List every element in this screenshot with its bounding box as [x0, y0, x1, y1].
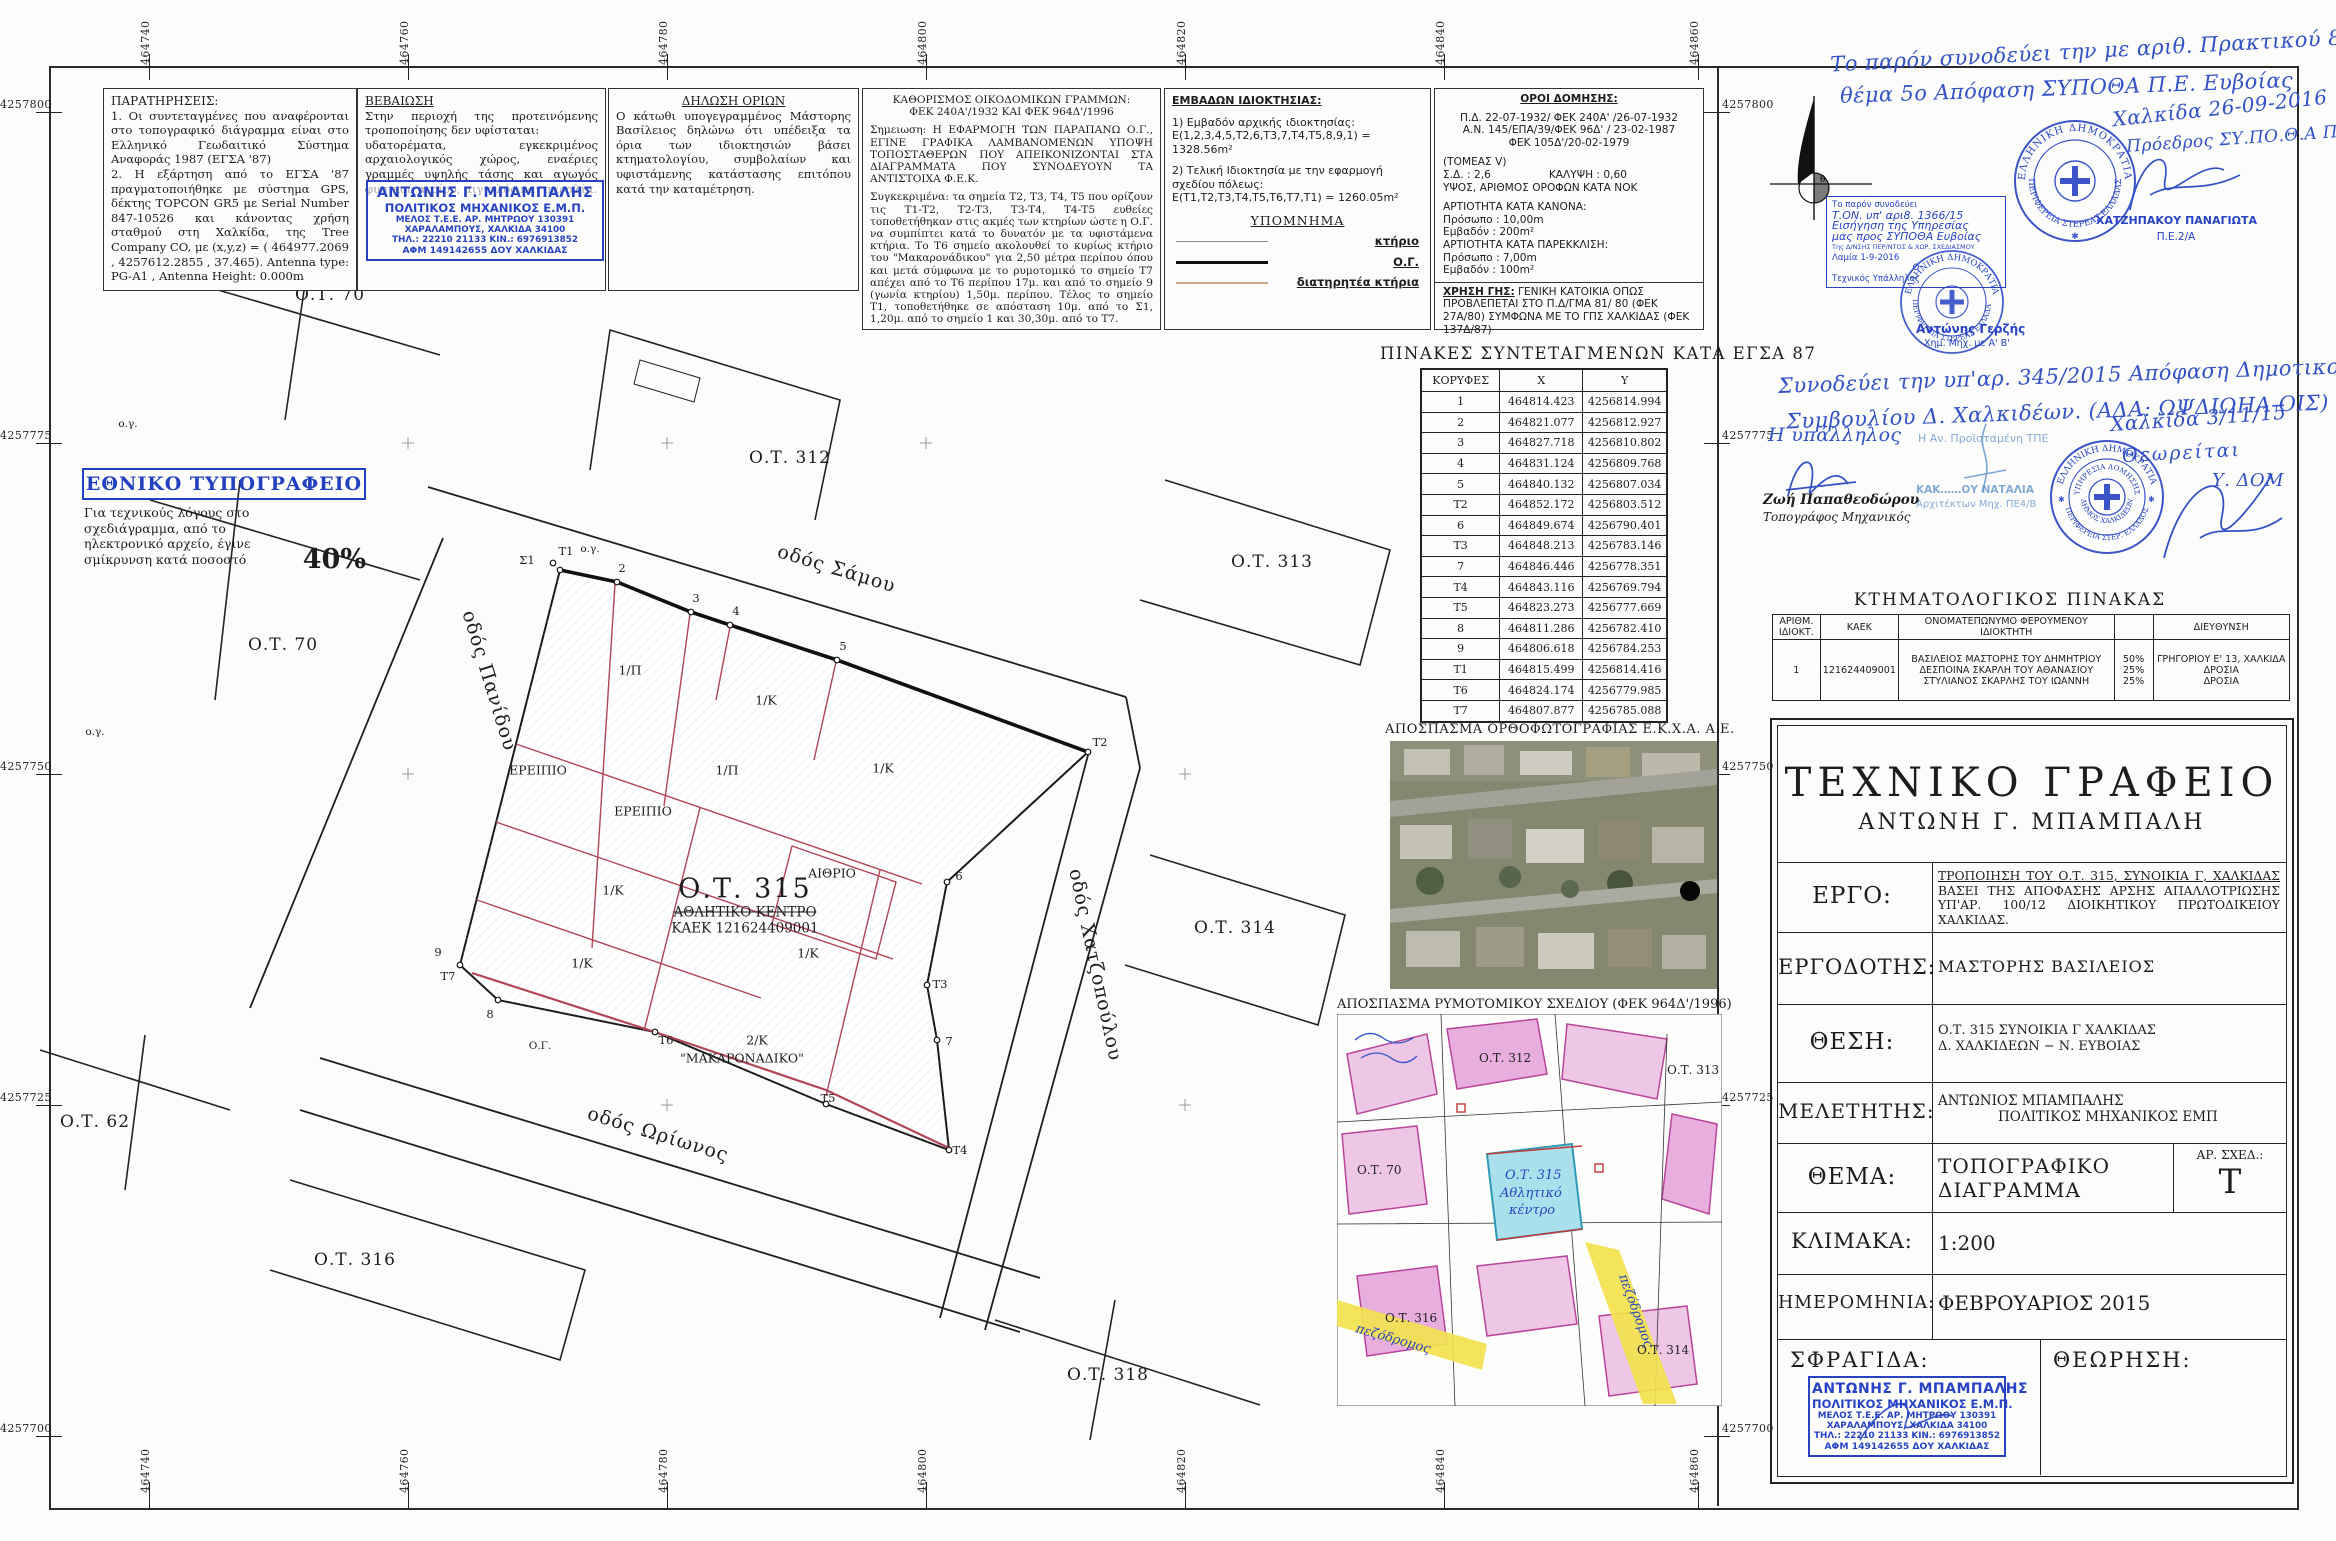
vertex-label: 8	[486, 1007, 493, 1021]
parcel-label: 2/Κ	[746, 1033, 768, 1048]
oroi-ypsos: ΥΨΟΣ, ΑΡΙΘΜΟΣ ΟΡΟΦΩΝ ΚΑΤΑ ΝΟΚ	[1443, 182, 1695, 195]
coords-table-title: ΠΙΝΑΚΕΣ ΣΥΝΤΕΤΑΓΜΕΝΩΝ ΚΑΤΑ ΕΓΣΑ 87	[1380, 344, 1710, 363]
coords-row: 6464849.6744256790.401	[1421, 515, 1667, 536]
coords-cell: 464852.172	[1500, 494, 1583, 515]
ergodotis-value: ΜΑΣΤΟΡΗΣ ΒΑΣΙΛΕΙΟΣ	[1938, 957, 2280, 976]
notes-kathorismos: ΚΑΘΟΡΙΣΜΟΣ ΟΙΚΟΔΟΜΙΚΩΝ ΓΡΑΜΜΩΝ: ΦΕΚ 240Α…	[862, 88, 1161, 330]
engineer-stamp-line: ΧΑΡΑΛΑΜΠΟΥΣ, ΧΑΛΚΙΔΑ 34100	[370, 225, 600, 235]
engineer-stamp-line: ΤΗΛ.: 22210 21133 ΚΙΝ.: 6976913852	[370, 235, 600, 245]
coords-cell: 464827.718	[1500, 433, 1583, 454]
gertzis-name: Αντώνης Γερζής	[1916, 322, 2025, 336]
handwritten-ypallilos: Η υπάλληλος	[1768, 424, 1901, 446]
coords-row: 1464814.4234256814.994	[1421, 392, 1667, 413]
coords-col-header: Υ	[1583, 369, 1667, 392]
coords-row: 3464827.7184256810.802	[1421, 433, 1667, 454]
thesi-line1: Ο.Τ. 315 ΣΥΝΟΙΚΙΑ Γ ΧΑΛΚΙΔΑΣ	[1938, 1023, 2280, 1039]
rymo-ot316: Ο.Τ. 316	[1385, 1311, 1437, 1325]
block-label: Ο.Τ. 318	[1067, 1365, 1149, 1385]
coords-cell: 4256807.034	[1583, 474, 1667, 495]
papatheodorou-name: Ζωή Παπαθεοδώρου	[1763, 492, 1919, 508]
parcel-label: ΕΡΕΙΠΙΟ	[509, 763, 567, 778]
vertex-label: Σ1	[519, 553, 534, 567]
legend-label: Ο.Γ.	[1393, 256, 1419, 270]
vertex-label: 9	[434, 945, 441, 959]
coords-row: Τ7464807.8774256785.088	[1421, 700, 1667, 721]
rymo-ot315-hand: Ο.Τ. 315	[1505, 1168, 1562, 1183]
klimaka-value: 1:200	[1938, 1231, 2280, 1255]
coords-cell: 9	[1421, 639, 1500, 660]
imerominia-label: ΗΜΕΡΟΜΗΝΙΑ:	[1778, 1293, 1926, 1313]
coords-row: 7464846.4464256778.351	[1421, 556, 1667, 577]
reduction-note-body: Για τεχνικούς λόγους στο σχεδιάγραμμα, α…	[84, 505, 250, 567]
topographic-drawing-sheet: 4647404647404647604647604647804647804648…	[0, 0, 2336, 1541]
emvadon-area2: Ε(Τ1,Τ2,Τ3,Τ4,Τ5,Τ6,Τ7,Τ1) = 1260.05m²	[1172, 191, 1423, 205]
office-subtitle: ΑΝΤΩΝΗ Γ. ΜΠΑΜΠΑΛΗ	[1778, 810, 2286, 835]
notes-oroi-domisis: ΟΡΟΙ ΔΟΜΗΣΗΣ: Π.Δ. 22-07-1932/ ΦΕΚ 240Α'…	[1434, 88, 1704, 330]
oroi-sd: Σ.Δ. : 2,6	[1443, 169, 1491, 181]
rect-stamp-line: μας προς ΣΥΠΟΘΑ Ευβοίας	[1832, 232, 2000, 243]
vertex-label: 2	[618, 561, 625, 575]
coords-cell: 4256812.927	[1583, 412, 1667, 433]
cadastral-cell: ΒΑΣΙΛΕΙΟΣ ΜΑΣΤΟΡΗΣ ΤΟΥ ΔΗΜΗΤΡΙΟΥΔΕΣΠΟΙΝΑ…	[1898, 640, 2114, 701]
natalia-title: Αρχιτέκτων Μηχ. ΠΕ4/Β	[1916, 499, 2036, 510]
oroi-fek1: Π.Δ. 22-07-1932/ ΦΕΚ 240Α' /26-07-1932	[1443, 112, 1695, 125]
cadastral-col-header: ΟΝΟΜΑΤΕΠΩΝΥΜΟ ΦΕΡΟΥΜΕΝΟΥ ΙΔΙΟΚΤΗΤΗ	[1898, 615, 2114, 640]
reduction-note: ΕΘΝΙΚΟ ΤΥΠΟΓΡΑΦΕΙΟ Για τεχνικούς λόγους …	[82, 468, 366, 567]
coords-row: Τ6464824.1744256779.985	[1421, 680, 1667, 701]
block-label: Ο.Τ. 70	[248, 635, 318, 655]
oroi-title: ΟΡΟΙ ΔΟΜΗΣΗΣ:	[1520, 93, 1618, 105]
coords-cell: 4256779.985	[1583, 680, 1667, 701]
legend-label: διατηρητέα κτήρια	[1297, 276, 1419, 290]
emvadon-area1: Ε(1,2,3,4,5,Τ2,6,Τ3,7,Τ4,Τ5,8,9,1) = 132…	[1172, 129, 1423, 156]
coords-cell: 464807.877	[1500, 700, 1583, 721]
cadastral-col-header: ΔΙΕΥΘΥΝΣΗ	[2153, 615, 2290, 640]
thesi-label: ΘΕΣΗ:	[1778, 1029, 1926, 1055]
street-label: οδός Σάμου	[775, 540, 899, 597]
oroi-artiotita2: ΑΡΤΙΟΤΗΤΑ ΚΑΤΑ ΠΑΡΕΚΚΛΙΣΗ:	[1443, 239, 1695, 252]
block-center-label: Ο.Τ. 315 ΑΘΛΗΤΙΚΟ ΚΕΝΤΡΟ ΚΑΕΚ 1216244090…	[671, 874, 818, 937]
engineer-stamp-line: ΠΟΛΙΤΙΚΟΣ ΜΗΧΑΝΙΚΟΣ Ε.Μ.Π.	[370, 201, 600, 215]
oroi-tomeas: (ΤΟΜΕΑΣ V)	[1443, 156, 1695, 169]
coords-cell: 464806.618	[1500, 639, 1583, 660]
engineer-stamp-vevaiosi: ΑΝΤΩΝΗΣ Γ. ΜΠΑΜΠΑΛΗΣΠΟΛΙΤΙΚΟΣ ΜΗΧΑΝΙΚΟΣ …	[366, 180, 604, 261]
oroi-prosopo2: Πρόσωπο : 7,00m	[1443, 252, 1695, 265]
legend-item: διατηρητέα κτήρια	[1176, 276, 1419, 290]
coords-cell: 4256777.669	[1583, 597, 1667, 618]
meletitis-line1: ΑΝΤΩΝΙΟΣ ΜΠΑΜΠΑΛΗΣ	[1938, 1093, 2280, 1109]
coords-row: Τ2464852.1724256803.512	[1421, 494, 1667, 515]
coords-header-row: ΚΟΡΥΦΕΣΧΥ	[1421, 369, 1667, 392]
cadastral-table: ΑΡΙΘΜ. ΙΔΙΟΚΤ.ΚΑΕΚΟΝΟΜΑΤΕΠΩΝΥΜΟ ΦΕΡΟΥΜΕΝ…	[1772, 614, 2290, 701]
coords-row: 2464821.0774256812.927	[1421, 412, 1667, 433]
coords-cell: 4256809.768	[1583, 453, 1667, 474]
coords-cell: Τ4	[1421, 577, 1500, 598]
street-label: οδός Χατζοπούλου	[1064, 867, 1126, 1063]
cadastral-col-header	[2114, 615, 2153, 640]
gertzis-grade: Χημ. Μηχ. με Α' Β'	[1924, 338, 2010, 349]
notes-paratiriseis: ΠΑΡΑΤΗΡΗΣΕΙΣ: 1. Οι συντεταγμένες που αν…	[103, 88, 357, 291]
rymotomiko-title: ΑΠΟΣΠΑΣΜΑ ΡΥΜΟΤΟΜΙΚΟΥ ΣΧΕΔΙΟΥ (ΦΕΚ 964Δ'…	[1337, 997, 1725, 1012]
ar-sxed-cell: ΑΡ. ΣΧΕΔ.: T	[2173, 1144, 2286, 1213]
coords-cell: 464840.132	[1500, 474, 1583, 495]
vertex-label: T2	[1093, 735, 1108, 749]
label-column-divider	[1932, 862, 1933, 1339]
parcel-label: 1/Κ	[797, 946, 819, 961]
cadastral-cell: ΓΡΗΓΟΡΙΟΥ Ε' 13, ΧΑΛΚΙΔΑΔΡΟΣΙΑΔΡΟΣΙΑ	[2153, 640, 2290, 701]
coords-cell: 6	[1421, 515, 1500, 536]
vertex-label: T7	[441, 969, 456, 983]
vertex-label: T1	[559, 544, 574, 558]
vertex-label: T6	[659, 1033, 674, 1047]
oroi-emvadon1: Εμβαδόν : 200m²	[1443, 226, 1695, 239]
title-block: ΤΕΧΝΙΚΟ ΓΡΑΦΕΙΟ ΑΝΤΩΝΗ Γ. ΜΠΑΜΠΑΛΗ ΕΡΓΟ:…	[1770, 718, 2294, 1484]
svg-text:✱: ✱	[2058, 495, 2065, 504]
coords-cell: Τ6	[1421, 680, 1500, 701]
rymo-ot70: Ο.Τ. 70	[1357, 1163, 1402, 1177]
ergo-line1: ΤΡΟΠΟΙΗΣΗ ΤΟΥ Ο.Τ. 315, ΣΥΝΟΙΚΙΑ Γ, ΧΑΛΚ…	[1938, 869, 2280, 883]
coords-cell: 464843.116	[1500, 577, 1583, 598]
coords-cell: 464831.124	[1500, 453, 1583, 474]
vevaiosi-title: ΒΕΒΑΙΩΣΗ	[365, 94, 434, 108]
coords-cell: Τ1	[1421, 659, 1500, 680]
svg-text:ΕΛΛΗΝΙΚΗ ΔΗΜΟΚΡΑΤΙΑ: ΕΛΛΗΝΙΚΗ ΔΗΜΟΚΡΑΤΙΑ	[1904, 253, 2001, 296]
emvadon-line1: 1) Εμβαδόν αρχικής ιδιοκτησίας:	[1172, 116, 1423, 130]
coords-cell: Τ7	[1421, 700, 1500, 721]
paratiriseis-title: ΠΑΡΑΤΗΡΗΣΕΙΣ:	[111, 94, 218, 108]
parcel-label: 1/Κ	[571, 956, 593, 971]
legend: κτήριοΟ.Γ.διατηρητέα κτήρια	[1172, 235, 1423, 290]
oroi-kalypsi: ΚΑΛΥΨΗ : 0,60	[1549, 169, 1627, 181]
coords-cell: 4256810.802	[1583, 433, 1667, 454]
kathorismos-title1: ΚΑΘΟΡΙΣΜΟΣ ΟΙΚΟΔΟΜΙΚΩΝ ΓΡΑΜΜΩΝ:	[870, 94, 1153, 106]
coords-row: 4464831.1244256809.768	[1421, 453, 1667, 474]
emvadon-line2: 2) Τελική Ιδιοκτησία με την εφαρμογή σχε…	[1172, 164, 1423, 191]
cadastral-cell: 50%25%25%	[2114, 640, 2153, 701]
svg-text:✱: ✱	[2148, 495, 2155, 504]
engineer-stamp-line: ΜΕΛΟΣ Τ.Ε.Ε. ΑΡ. ΜΗΤΡΩΟΥ 130391	[370, 215, 600, 225]
rymotomiko-image: Ο.Τ. 312 Ο.Τ. 70 Ο.Τ. 313 Ο.Τ. 316 Ο.Τ. …	[1337, 1014, 1722, 1406]
coords-row: Τ3464848.2134256783.146	[1421, 536, 1667, 557]
vertex-label: 4	[732, 604, 739, 618]
coords-row: Τ5464823.2734256777.669	[1421, 597, 1667, 618]
cadastral-cell: 1	[1773, 640, 1821, 701]
klimaka-label: ΚΛΙΜΑΚΑ:	[1778, 1229, 1926, 1253]
legend-item: Ο.Γ.	[1176, 256, 1419, 270]
rymo-athlitiko-hand: Αθλητικό	[1499, 1186, 1562, 1201]
coords-cell: 4256769.794	[1583, 577, 1667, 598]
og-label: ο.γ.	[580, 543, 599, 555]
coords-cell: 464849.674	[1500, 515, 1583, 536]
coords-row: 8464811.2864256782.410	[1421, 618, 1667, 639]
coords-cell: 464814.423	[1500, 392, 1583, 413]
coords-table: ΚΟΡΥΦΕΣΧΥ 1464814.4234256814.9942464821.…	[1420, 368, 1668, 723]
cadastral-col-header: ΑΡΙΘΜ. ΙΔΙΟΚΤ.	[1773, 615, 1821, 640]
vertex-label: 3	[692, 591, 699, 605]
coords-row: Τ1464815.4994256814.416	[1421, 659, 1667, 680]
title-block-inner-border: ΤΕΧΝΙΚΟ ΓΡΑΦΕΙΟ ΑΝΤΩΝΗ Γ. ΜΠΑΜΠΑΛΗ ΕΡΓΟ:…	[1777, 725, 2287, 1477]
hatzipakou-grade: Π.Ε.2/Α	[2096, 231, 2256, 243]
coords-cell: 2	[1421, 412, 1500, 433]
parcel-label: 1/Π	[618, 663, 641, 678]
coords-cell: 7	[1421, 556, 1500, 577]
cadastral-col-header: ΚΑΕΚ	[1820, 615, 1898, 640]
dilosi-title: ΔΗΛΩΣΗ ΟΡΙΩΝ	[682, 94, 786, 108]
paratiriseis-body: 1. Οι συντεταγμένες που αναφέρονται στο …	[111, 109, 349, 284]
legend-line-sample	[1176, 261, 1268, 264]
cadastral-cell: 121624409001	[1820, 640, 1898, 701]
natalia-name: ΚΑΚ……ΟΥ ΝΑΤΑΛΙΑ	[1916, 484, 2034, 496]
kaek-label: ΚΑΕΚ 121624409001	[671, 921, 818, 937]
coords-cell: 4256778.351	[1583, 556, 1667, 577]
meletitis-label: ΜΕΛΕΤΗΤΗΣ:	[1778, 1099, 1926, 1123]
coords-cell: 3	[1421, 433, 1500, 454]
block-label: Ο.Τ. 314	[1194, 918, 1276, 938]
ar-sxed-value: T	[2174, 1162, 2286, 1202]
xrisi-gis-label: ΧΡΗΣΗ ΓΗΣ:	[1443, 286, 1515, 298]
sfragida-label: ΣΦΡΑΓΙΔΑ:	[1790, 1348, 1930, 1372]
ergo-label: ΕΡΓΟ:	[1778, 883, 1926, 909]
legend-item: κτήριο	[1176, 235, 1419, 249]
orthophoto-image	[1390, 741, 1717, 989]
papatheodorou-title: Τοπογράφος Μηχανικός	[1763, 510, 1911, 524]
engineer-stamp-line: ΑΝΤΩΝΗΣ Γ. ΜΠΑΜΠΑΛΗΣ	[370, 185, 600, 201]
orthophoto-title: ΑΠΟΣΠΑΣΜΑ ΟΡΘΟΦΩΤΟΓΡΑΦΙΑΣ Ε.Κ.Χ.Α. Α.Ε.	[1385, 722, 1717, 737]
oroi-prosopo1: Πρόσωπο : 10,00m	[1443, 214, 1695, 227]
thema-label: ΘΕΜΑ:	[1778, 1164, 1926, 1190]
ypomnima-title: ΥΠΟΜΝΗΜΑ	[1251, 213, 1345, 228]
oroi-fek3: ΦΕΚ 105Δ'/20-02-1979	[1443, 137, 1695, 150]
ergo-rest: ΒΑΣΕΙ ΤΗΣ ΑΠΟΦΑΣΗΣ ΑΡΣΗΣ ΑΠΑΛΛΟΤΡΙΩΣΗΣ Υ…	[1938, 884, 2280, 927]
theorisi-label: ΘΕΩΡΗΣΗ:	[2053, 1348, 2192, 1372]
cadastral-row: 1121624409001ΒΑΣΙΛΕΙΟΣ ΜΑΣΤΟΡΗΣ ΤΟΥ ΔΗΜΗ…	[1773, 640, 2290, 701]
vertex-label: 7	[945, 1034, 952, 1048]
coords-cell: Τ3	[1421, 536, 1500, 557]
coords-cell: 4256790.401	[1583, 515, 1667, 536]
coords-row: 5464840.1324256807.034	[1421, 474, 1667, 495]
coords-cell: 464848.213	[1500, 536, 1583, 557]
parcel-label: 1/Κ	[755, 693, 777, 708]
coords-cell: 4	[1421, 453, 1500, 474]
cadastral-title: ΚΤΗΜΑΤΟΛΟΓΙΚΟΣ ΠΙΝΑΚΑΣ	[1830, 590, 2190, 610]
coords-cell: 8	[1421, 618, 1500, 639]
notes-emvadon: ΕΜΒΑΔΩΝ ΙΔΙΟΚΤΗΣΙΑΣ: 1) Εμβαδόν αρχικής …	[1164, 88, 1431, 330]
coords-cell: 464815.499	[1500, 659, 1583, 680]
vertex-label: 5	[839, 639, 846, 653]
coords-cell: 464846.446	[1500, 556, 1583, 577]
legend-label: κτήριο	[1375, 235, 1419, 249]
coords-col-header: Χ	[1500, 369, 1583, 392]
kathorismos-note: Σημειωση: Η ΕΦΑΡΜΟΓΗ ΤΩΝ ΠΑΡΑΠΑΝΩ Ο.Γ., …	[870, 124, 1153, 185]
ypiresia-domisis-stamp: ✱✱ ΕΛΛΗΝΙΚΗ ΔΗΜΟΚΡΑΤΙΑ ΠΕΡΙΦΕΡΕΙΑ ΣΤΕΡ. …	[2048, 438, 2166, 556]
engineer-stamp-line: ΑΦΜ 149142655 ΔΟΥ ΧΑΛΚΙΔΑΣ	[370, 245, 600, 256]
meletitis-line2: ΠΟΛΙΤΙΚΟΣ ΜΗΧΑΝΙΚΟΣ ΕΜΠ	[1938, 1109, 2280, 1125]
coords-cell: 4256782.410	[1583, 618, 1667, 639]
kathorismos-detail: Συγκεκριμένα: τα σημεία Τ2, Τ3, Τ4, Τ5 π…	[870, 191, 1153, 325]
coords-cell: 464811.286	[1500, 618, 1583, 639]
coords-cell: 1	[1421, 392, 1500, 413]
coords-cell: Τ2	[1421, 494, 1500, 515]
parcel-label: 1/Π	[715, 763, 738, 778]
coords-cell: 4256785.088	[1583, 700, 1667, 721]
parcel-label: 1/Κ	[872, 761, 894, 776]
imerominia-value: ΦΕΒΡΟΥΑΡΙΟΣ 2015	[1938, 1291, 2280, 1315]
ergodotis-label: ΕΡΓΟΔΟΤΗΣ:	[1778, 955, 1926, 979]
vertex-label: T3	[933, 977, 948, 991]
og-label: Ο.Γ.	[529, 1040, 552, 1052]
ot315-label: Ο.Τ. 315	[671, 874, 818, 905]
emvadon-title: ΕΜΒΑΔΩΝ ΙΔΙΟΚΤΗΣΙΑΣ:	[1172, 94, 1322, 107]
notes-dilosi-orion: ΔΗΛΩΣΗ ΟΡΙΩΝ Ο κάτωθι υπογεγραμμένος Μάσ…	[608, 88, 859, 291]
legend-line-sample	[1176, 241, 1268, 242]
svg-text:✱: ✱	[2071, 232, 2079, 242]
og-label: ο.γ.	[85, 726, 104, 738]
thesi-line2: Δ. ΧΑΛΚΙΔΕΩΝ − Ν. ΕΥΒΟΙΑΣ	[1938, 1039, 2280, 1055]
oroi-fek2: Α.Ν. 145/ΕΠΑ/39/ΦΕΚ 96Δ' / 23-02-1987	[1443, 124, 1695, 137]
coords-cell: 4256803.512	[1583, 494, 1667, 515]
parcel-label: 1/Κ	[602, 883, 624, 898]
rymo-kentro-hand: κέντρο	[1508, 1203, 1555, 1218]
oroi-emvadon2: Εμβαδόν : 100m²	[1443, 264, 1695, 277]
coords-cell: 4256783.146	[1583, 536, 1667, 557]
block-label: Ο.Τ. 62	[60, 1112, 130, 1132]
hatzipakou-name: ΧΑΤΖΗΠΑΚΟΥ ΠΑΝΑΓΙΩΤΑ	[2096, 214, 2257, 227]
block-label: Ο.Τ. 316	[314, 1250, 396, 1270]
athlitiko-kentro-label: ΑΘΛΗΤΙΚΟ ΚΕΝΤΡΟ	[671, 905, 818, 921]
coords-cell: 4256814.994	[1583, 392, 1667, 413]
legend-line-sample	[1176, 282, 1268, 284]
kathorismos-title2: ΦΕΚ 240Α'/1932 ΚΑΙ ΦΕΚ 964Δ'/1996	[870, 106, 1153, 118]
vertex-label: 6	[955, 869, 962, 883]
coords-row: 9464806.6184256784.253	[1421, 639, 1667, 660]
parcel-label: "ΜΑΚΑΡΟΝΑΔΙΚΟ"	[680, 1051, 804, 1066]
vertex-label: T4	[953, 1143, 968, 1157]
coords-cell: 464823.273	[1500, 597, 1583, 618]
reduction-percent: 40%	[303, 552, 366, 568]
coords-cell: 4256814.416	[1583, 659, 1667, 680]
office-title: ΤΕΧΝΙΚΟ ΓΡΑΦΕΙΟ	[1778, 760, 2286, 806]
coords-row: Τ4464843.1164256769.794	[1421, 577, 1667, 598]
ar-sxed-label: ΑΡ. ΣΧΕΔ.:	[2174, 1148, 2286, 1162]
block-label: Ο.Τ. 313	[1231, 552, 1313, 572]
reduction-note-title: ΕΘΝΙΚΟ ΤΥΠΟΓΡΑΦΕΙΟ	[82, 468, 366, 500]
coords-cell: 5	[1421, 474, 1500, 495]
signature-over-stamp	[1850, 1392, 1960, 1452]
coords-cell: 464824.174	[1500, 680, 1583, 701]
rymo-ot313: Ο.Τ. 313	[1667, 1063, 1719, 1077]
svg-text:θ: θ	[1820, 175, 1825, 185]
parcel-label: ΕΡΕΙΠΙΟ	[614, 804, 672, 819]
dilosi-body: Ο κάτωθι υπογεγραμμένος Μάστορης Βασίλει…	[616, 109, 851, 197]
coords-cell: 464821.077	[1500, 412, 1583, 433]
coords-col-header: ΚΟΡΥΦΕΣ	[1421, 369, 1500, 392]
rymo-ot312: Ο.Τ. 312	[1479, 1051, 1531, 1065]
coords-cell: Τ5	[1421, 597, 1500, 618]
theorisi-cell: ΘΕΩΡΗΣΗ:	[2040, 1340, 2286, 1475]
coords-cell: 4256784.253	[1583, 639, 1667, 660]
vertex-label: T5	[821, 1091, 836, 1105]
street-label: οδός Πανίδου	[457, 608, 521, 754]
street-label: οδός Ωρίωνος	[585, 1102, 732, 1166]
og-label: ο.γ.	[118, 418, 137, 430]
oroi-artiotita1: ΑΡΤΙΟΤΗΤΑ ΚΑΤΑ ΚΑΝΟΝΑ:	[1443, 201, 1695, 214]
block-label: Ο.Τ. 312	[749, 448, 831, 468]
